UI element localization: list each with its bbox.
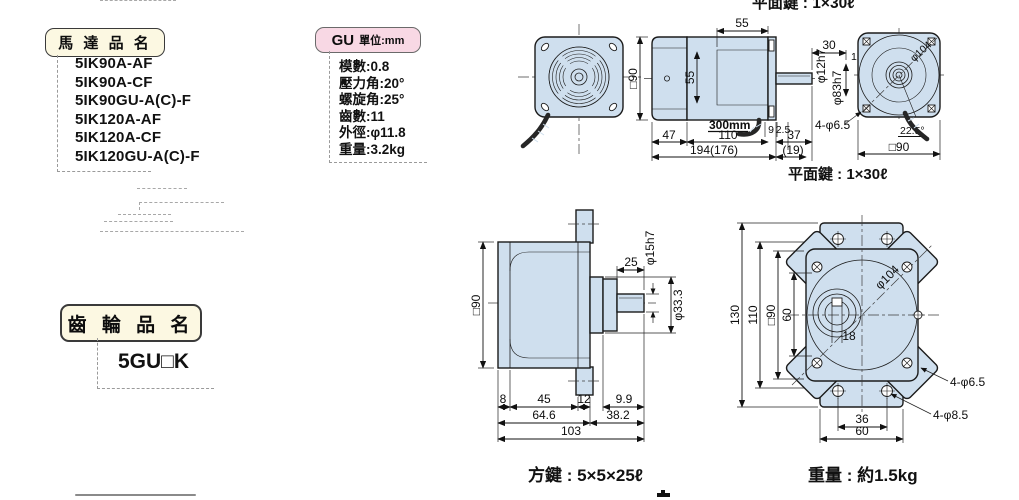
dim-55-inner: 55 <box>683 71 697 85</box>
dim-sq90-rear: □90 <box>889 140 910 154</box>
gu-spec: 外徑:φ11.8 <box>339 125 406 142</box>
dim-8: 8 <box>500 392 507 406</box>
leader-dash <box>137 188 187 189</box>
dim-shaft-dia: φ12h7 <box>814 48 828 83</box>
gu-unit: 單位:mm <box>359 32 404 48</box>
dim-12: 12 <box>577 392 591 406</box>
dim-45: 45 <box>537 392 551 406</box>
dim-60-horiz: 60 <box>855 424 869 438</box>
motor-model: 5IK90A-AF <box>75 55 200 74</box>
motor-name-badge: 馬 達 品 名 <box>45 28 165 57</box>
leader-dash <box>100 231 244 232</box>
dim-corner-holes: 4-φ6.5 <box>815 118 850 132</box>
dim-19: (19) <box>782 143 803 157</box>
gearhead-front-view: φ104 18 <box>728 215 985 443</box>
dim-60-vert: 60 <box>780 308 794 322</box>
motor-name-title: 馬 達 品 名 <box>58 32 152 53</box>
motor-drawing: □90 55 55 30 1 φ12h7 φ83h7 300mm 9 <box>510 0 1019 195</box>
cutoff-box-edge <box>75 494 196 496</box>
dim-sq90-front: □90 <box>764 304 778 325</box>
dim-103: 103 <box>561 424 581 438</box>
gear-name-badge: 齒 輪 品 名 <box>60 304 202 342</box>
cutoff-glyph-stem <box>661 490 665 493</box>
dim-110: 110 <box>718 128 737 142</box>
gu-spec: 螺旋角:25° <box>339 92 406 109</box>
motor-model-list: 5IK90A-AF 5IK90A-CF 5IK90GU-A(C)-F 5IK12… <box>75 55 200 167</box>
motor-model: 5IK120A-AF <box>75 111 200 130</box>
leader-dash <box>139 202 224 210</box>
dim-shaft-dia-gear: φ15h7 <box>643 230 657 265</box>
square-key-label: 方鍵 : 5×5×25ℓ <box>528 461 643 486</box>
dim-9-9: 9.9 <box>616 392 633 406</box>
dim-110-front: 110 <box>746 305 760 324</box>
dim-37: 37 <box>787 128 801 142</box>
dim-sq90-side: □90 <box>469 294 483 315</box>
dim-47: 47 <box>662 128 676 142</box>
dim-total: 194(176) <box>690 143 738 157</box>
gu-spec: 齒數:11 <box>339 109 406 126</box>
motor-model: 5IK90GU-A(C)-F <box>75 92 200 111</box>
gu-spec-list: 模數:0.8 壓力角:20° 螺旋角:25° 齒數:11 外徑:φ11.8 重量… <box>339 59 406 159</box>
gear-model: 5GU□K <box>118 350 189 374</box>
dim-sq90: □90 <box>626 68 640 89</box>
gearhead-drawing: □90 25 φ15h7 φ33.3 8 <box>440 195 1019 460</box>
motor-model: 5IK120GU-A(C)-F <box>75 148 200 167</box>
leader-dash <box>104 221 173 222</box>
gearhead-side-view: □90 25 φ15h7 φ33.3 8 <box>469 210 685 442</box>
gear-name-title: 齒 輪 品 名 <box>68 310 195 337</box>
callout-4-8-5: 4-φ8.5 <box>933 408 968 422</box>
dim-25: 25 <box>624 255 638 269</box>
gu-unit-badge: GU 單位:mm <box>315 27 421 53</box>
motor-front-view <box>518 24 641 154</box>
dim-boss-dia: φ33.3 <box>671 289 685 320</box>
dim-64-6: 64.6 <box>532 408 556 422</box>
dim-18: 18 <box>842 329 856 343</box>
dashed-fragment-top <box>100 0 176 1</box>
motor-side-view: □90 55 55 30 1 φ12h7 φ83h7 300mm 9 <box>626 16 857 161</box>
gu-title: GU <box>332 32 355 49</box>
dim-spigot-dia: φ83h7 <box>830 70 844 105</box>
catalog-page: 馬 達 品 名 5IK90A-AF 5IK90A-CF 5IK90GU-A(C)… <box>0 0 1019 500</box>
lead-wire <box>523 115 548 146</box>
dim-130: 130 <box>728 305 742 325</box>
cutoff-glyph <box>657 493 670 497</box>
dim-38-2: 38.2 <box>606 408 630 422</box>
gu-spec: 壓力角:20° <box>339 76 406 93</box>
leader-dash <box>118 214 171 215</box>
dim-55-top: 55 <box>735 16 749 30</box>
motor-model: 5IK90A-CF <box>75 74 200 93</box>
gu-spec: 重量:3.2kg <box>339 142 406 159</box>
callout-4-6-5: 4-φ6.5 <box>950 375 985 389</box>
gu-spec: 模數:0.8 <box>339 59 406 76</box>
motor-model: 5IK120A-CF <box>75 129 200 148</box>
dim-1: 1 <box>851 51 857 63</box>
gear-weight-label: 重量 : 約1.5kg <box>808 461 918 486</box>
dim-9: 9 <box>768 124 774 136</box>
